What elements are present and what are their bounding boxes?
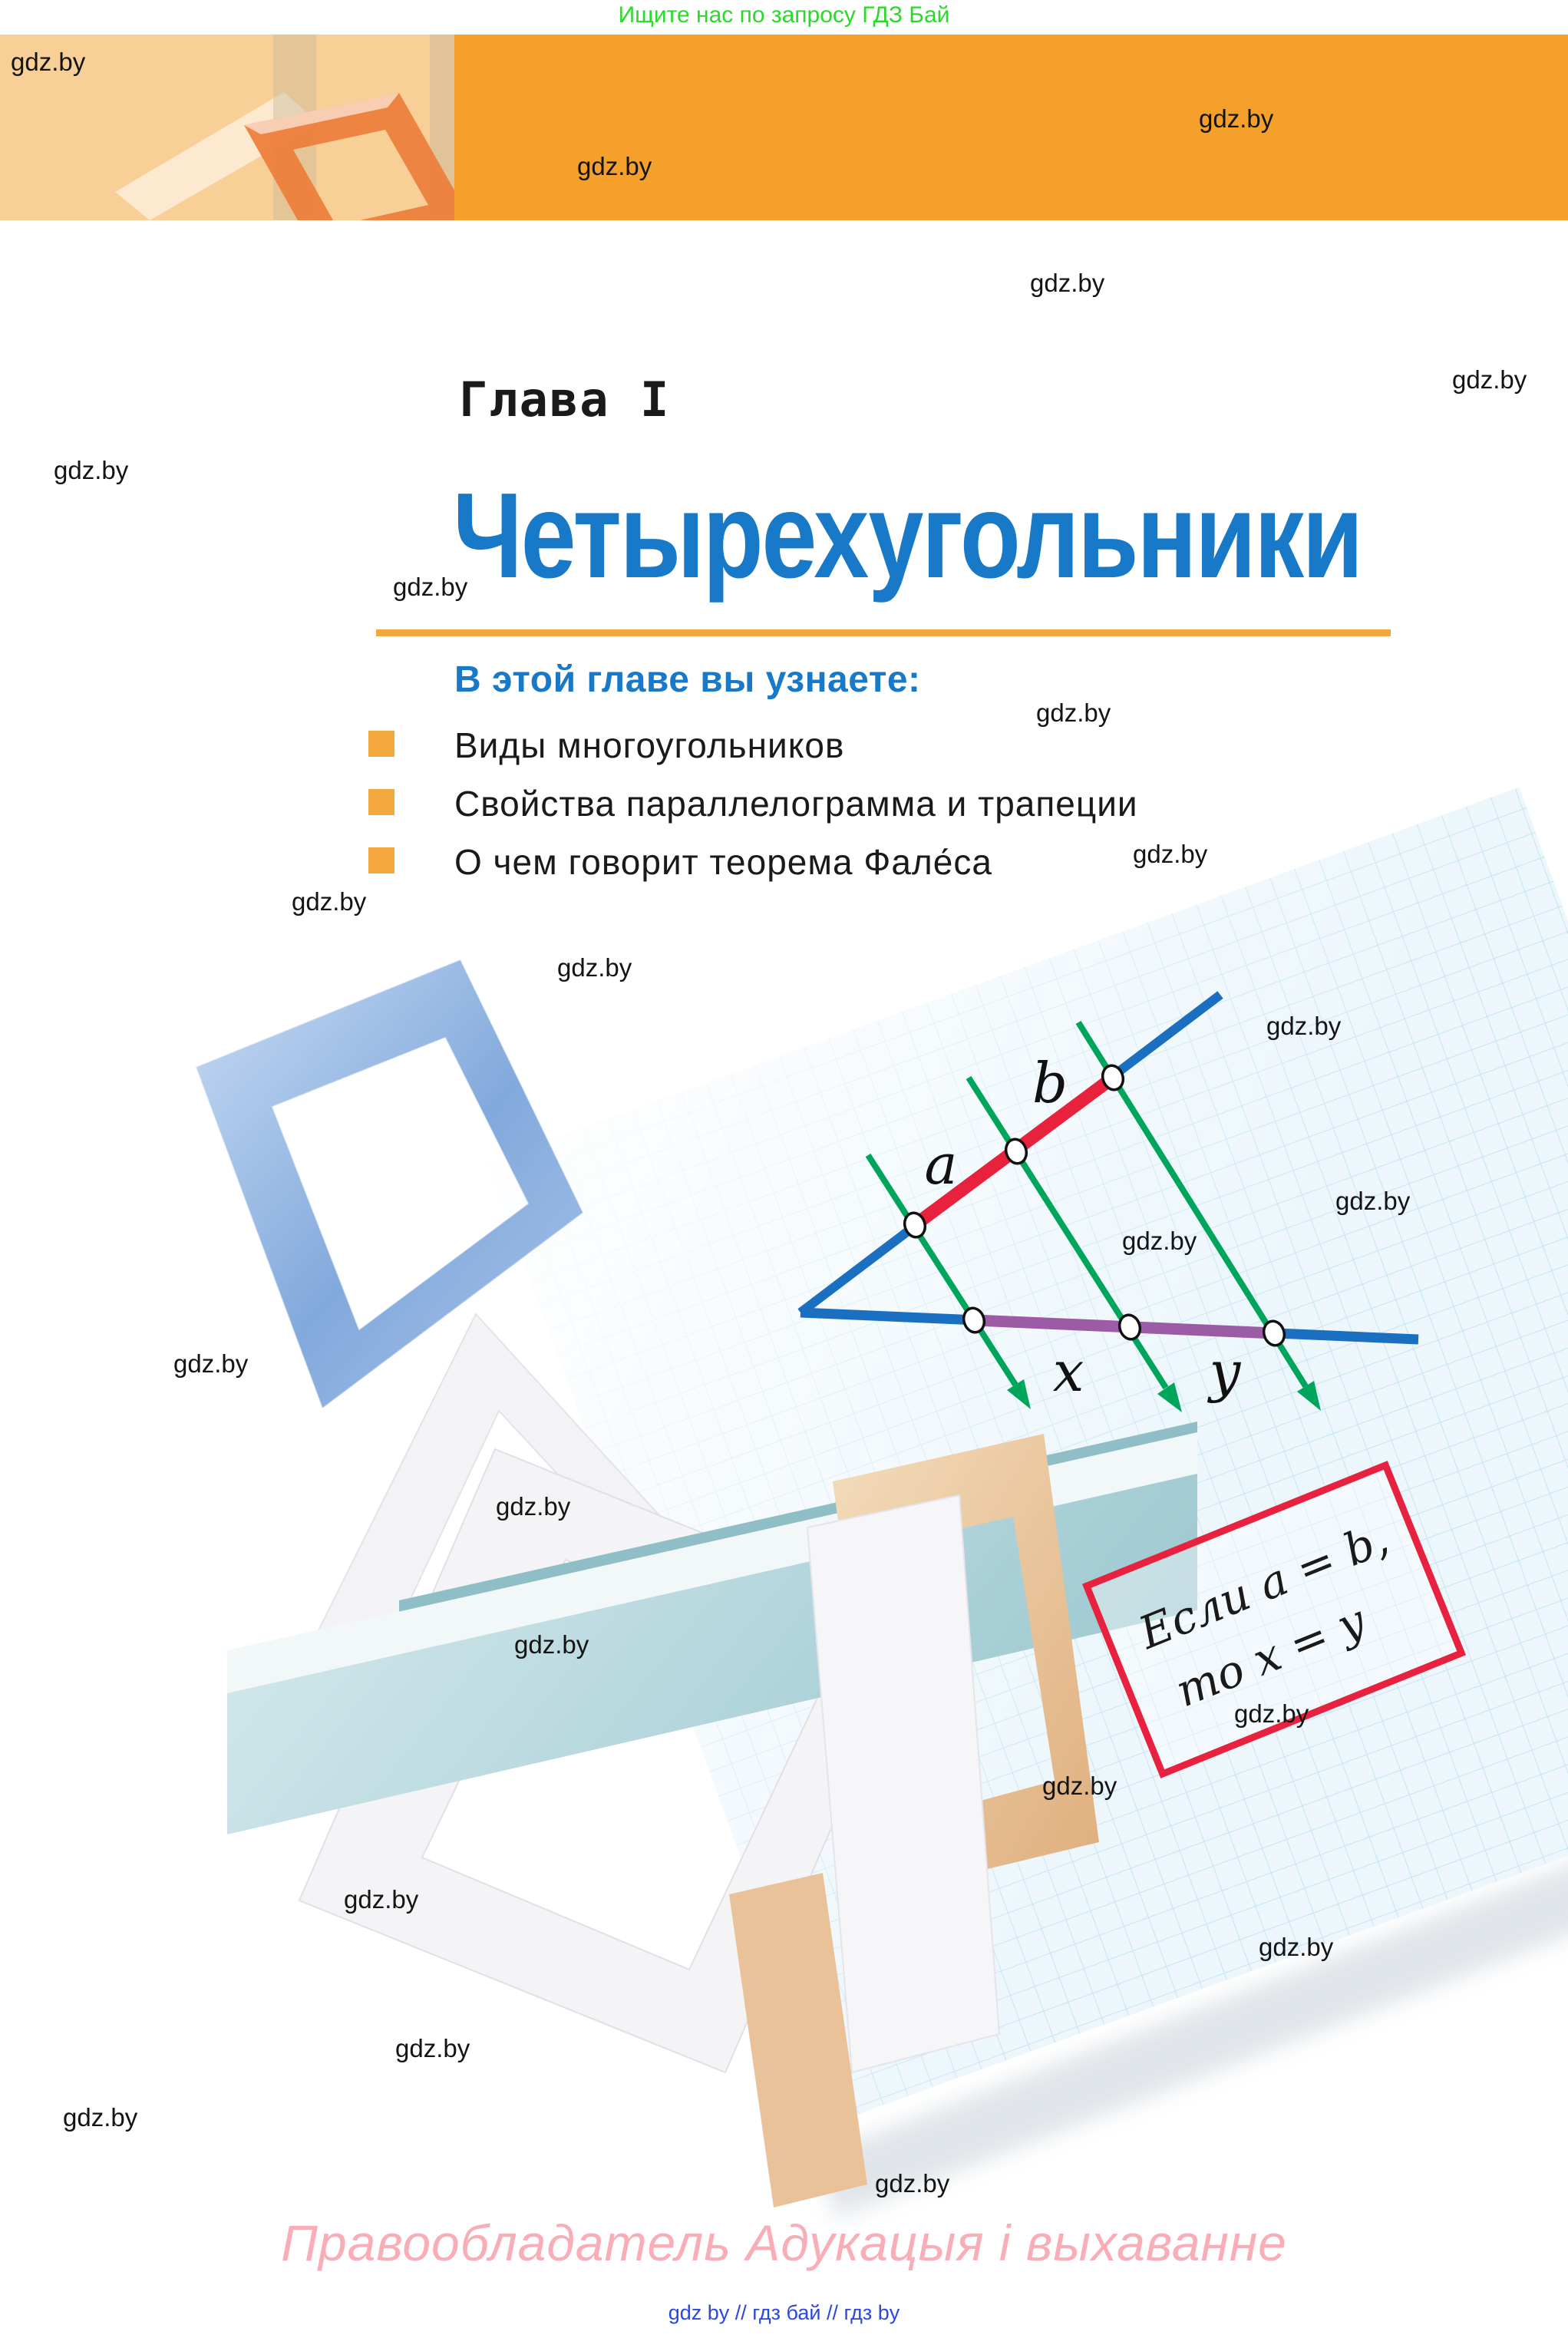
watermark: gdz.by — [577, 154, 652, 179]
label-a: a — [925, 1132, 958, 1197]
watermark: gdz.by — [54, 457, 128, 483]
watermark: gdz.by — [63, 2105, 137, 2130]
watermark: gdz.by — [1335, 1188, 1410, 1214]
list-item-label: Виды многоугольников — [454, 725, 844, 766]
watermark: gdz.by — [1452, 367, 1527, 392]
bullet-square-icon — [368, 789, 394, 815]
watermark: gdz.by — [1234, 1701, 1309, 1726]
watermark: gdz.by — [875, 2171, 949, 2196]
list-item-label: Свойства параллелограмма и трапеции — [454, 783, 1138, 824]
footer-links[interactable]: gdz by // гдз бай // гдз by — [0, 2301, 1568, 2325]
watermark: gdz.by — [1259, 1934, 1333, 1960]
watermark: gdz.by — [496, 1494, 570, 1519]
watermark: gdz.by — [292, 889, 366, 914]
watermark: gdz.by — [173, 1351, 248, 1376]
watermark: gdz.by — [1122, 1228, 1197, 1253]
label-y: y — [1207, 1339, 1242, 1404]
watermark: gdz.by — [1030, 270, 1104, 296]
watermark: gdz.by — [11, 49, 85, 74]
chapter-label: Глава I — [459, 372, 670, 428]
watermark: gdz.by — [514, 1632, 589, 1657]
page-title: Четырехугольники — [453, 473, 1362, 600]
bullet-square-icon — [368, 731, 394, 757]
watermark: gdz.by — [557, 955, 632, 980]
watermark: gdz.by — [1036, 700, 1111, 725]
watermark: gdz.by — [1199, 106, 1273, 131]
watermark: gdz.by — [344, 1887, 418, 1912]
watermark: gdz.by — [1266, 1013, 1341, 1039]
intro-heading: В этой главе вы узнаете: — [454, 659, 921, 701]
header-band — [0, 35, 1568, 220]
list-item: Свойства параллелограмма и трапеции — [368, 789, 1138, 824]
title-rule — [376, 629, 1391, 636]
watermark: gdz.by — [1133, 841, 1207, 867]
watermark: gdz.by — [395, 2036, 470, 2061]
watermark: gdz.by — [1042, 1773, 1117, 1798]
bullet-square-icon — [368, 847, 394, 873]
list-item-label: О чем говорит теорема Фале́са — [454, 841, 992, 883]
illustration-layer: b a x y Если a = b, то x = y — [0, 0, 1568, 2338]
label-b: b — [1032, 1051, 1068, 1115]
list-item: Виды многоугольников — [368, 731, 844, 766]
header-orange-bar — [454, 35, 1568, 220]
list-item: О чем говорит теорема Фале́са — [368, 847, 992, 883]
blue-trapezoid-frame — [196, 959, 583, 1408]
promo-banner: Ищите нас по запросу ГДЗ Бай — [0, 2, 1568, 28]
watermark: gdz.by — [393, 574, 467, 599]
copyright-holder-text: Правообладатель Адукацыя і выхаванне — [0, 2214, 1568, 2272]
label-x: x — [1053, 1339, 1084, 1404]
